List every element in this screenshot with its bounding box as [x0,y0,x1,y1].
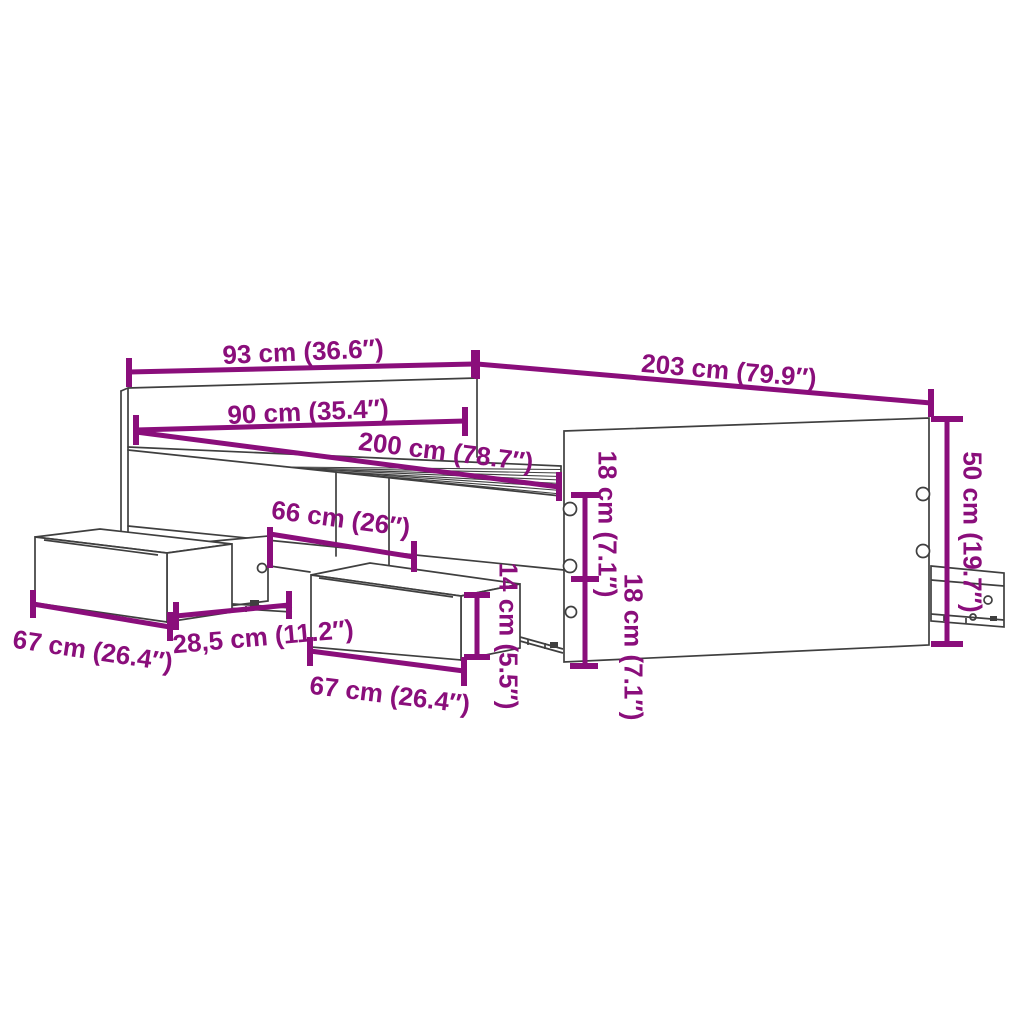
middle-drawer-runner [520,637,563,653]
dim-drawer-height: 14 cm (5.5″) [494,563,524,710]
diagram-canvas: 93 cm (36.6″) 203 cm (79.9″) 90 cm (35.4… [0,0,1024,1024]
dim-rail-lower-height: 18 cm (7.1″) [619,574,649,721]
dim-left-drawer-front: 67 cm (26.4″) [11,624,175,678]
dim-middle-drawer-front: 67 cm (26.4″) [308,670,472,719]
middle-drawer [311,563,520,660]
dim-end-height: 50 cm (19.7″) [958,451,988,612]
bed-frame-dimension-diagram: 93 cm (36.6″) 203 cm (79.9″) 90 cm (35.4… [0,0,1024,1024]
dim-rail-upper-height: 18 cm (7.1″) [593,451,623,598]
